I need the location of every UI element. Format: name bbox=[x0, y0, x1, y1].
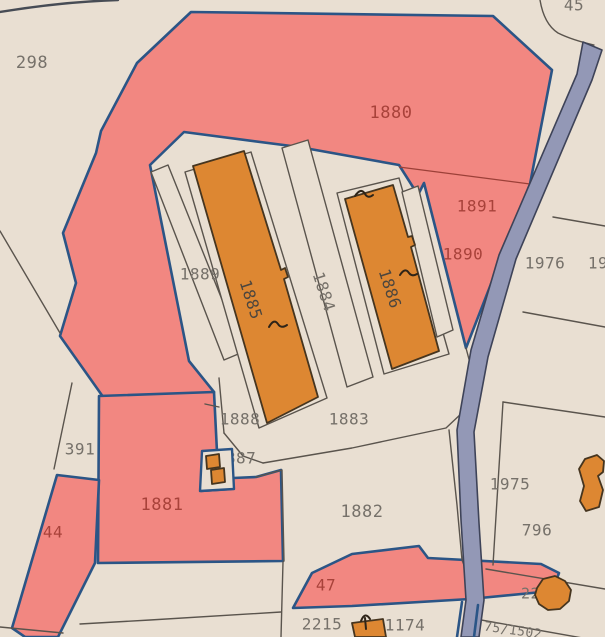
parcel-label-298: 298 bbox=[16, 53, 48, 73]
parcel-label-1890: 1890 bbox=[443, 245, 484, 264]
parcel-label-1888: 1888 bbox=[220, 410, 261, 429]
parcel-label-1881: 1881 bbox=[141, 495, 184, 515]
parcel-label-47: 47 bbox=[316, 576, 336, 595]
parcel-label-1889: 1889 bbox=[180, 265, 221, 284]
building-1174-shape[interactable] bbox=[352, 619, 386, 637]
parcel-label-1975: 1975 bbox=[490, 475, 531, 494]
cadastral-map-canvas[interactable]: 18872253 2984518801891189019761918891885… bbox=[0, 0, 605, 637]
building-right-edge-shape[interactable] bbox=[579, 455, 604, 511]
parcel-label-1891: 1891 bbox=[457, 197, 498, 216]
parcel-label-1174: 1174 bbox=[385, 616, 426, 635]
parcel-label-2215: 2215 bbox=[302, 615, 343, 634]
parcel-label-1976: 1976 bbox=[525, 254, 566, 273]
building-1887-a-shape[interactable] bbox=[206, 454, 220, 469]
building-1887-b-shape[interactable] bbox=[211, 468, 225, 484]
parcel-label-796: 796 bbox=[522, 521, 552, 540]
parcel-label-1882: 1882 bbox=[341, 502, 384, 522]
parcel-label-1880: 1880 bbox=[370, 103, 413, 123]
parcel-label-45: 45 bbox=[564, 0, 584, 15]
parcel-label-1883: 1883 bbox=[329, 410, 370, 429]
map-viewport[interactable]: 18872253 2984518801891189019761918891885… bbox=[0, 0, 605, 637]
parcel-label-19-clipped: 19 bbox=[588, 254, 605, 273]
parcel-label-391: 391 bbox=[65, 440, 95, 459]
parcel-label-44: 44 bbox=[43, 523, 63, 542]
